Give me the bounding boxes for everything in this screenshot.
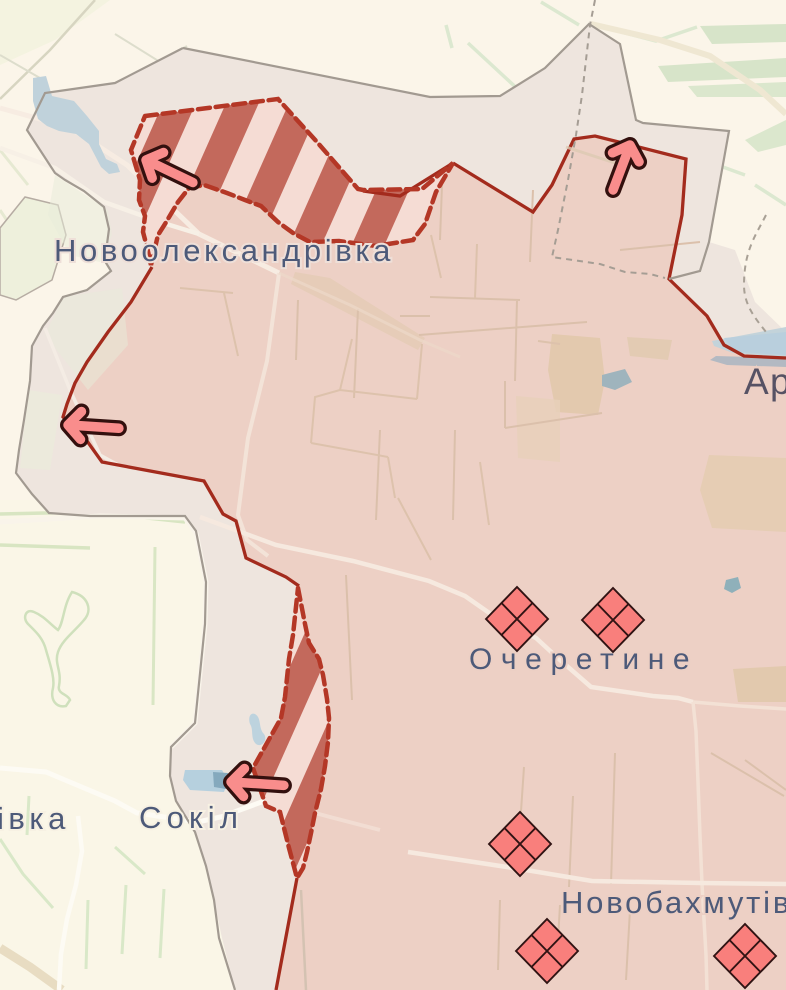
svg-text:Сокіл: Сокіл [139, 800, 243, 835]
svg-text:івка: івка [0, 801, 70, 836]
svg-text:Новобахмутівка: Новобахмутівка [561, 885, 786, 920]
svg-text:Ар: Ар [744, 361, 786, 402]
svg-text:Новоолександрівка: Новоолександрівка [54, 233, 394, 268]
svg-text:Очеретине: Очеретине [469, 643, 698, 676]
